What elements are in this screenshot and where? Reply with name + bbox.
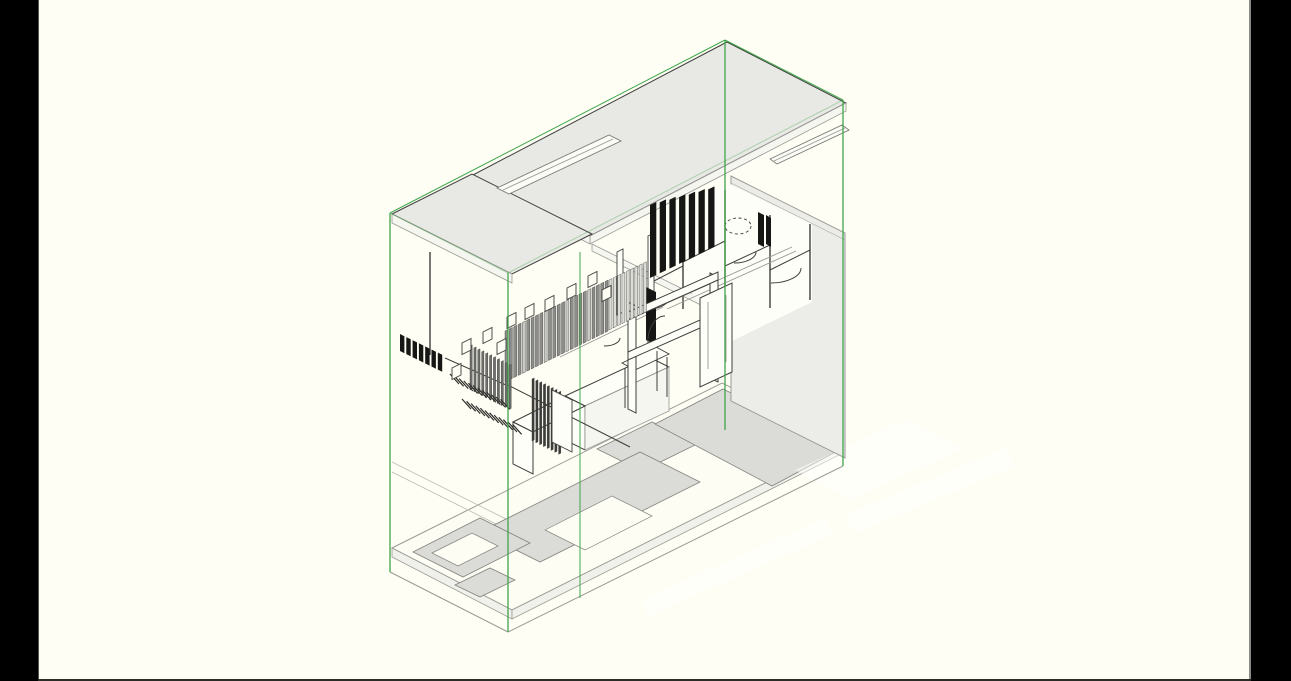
left-wall-dark-louvers — [400, 334, 442, 372]
letterbox-divider-line — [1249, 0, 1251, 681]
dark-door-slot — [646, 287, 656, 345]
application-viewport — [0, 0, 1291, 681]
partition-with-door — [700, 283, 732, 387]
door-arc — [604, 338, 620, 346]
dark-door-slot — [758, 212, 764, 247]
dark-door-slot — [766, 215, 771, 247]
wall-base-line — [392, 462, 512, 522]
screen-panel — [552, 390, 572, 452]
letterbox-right — [1251, 0, 1291, 681]
letterbox-left — [0, 0, 39, 681]
louver-screen-light — [609, 262, 646, 330]
axonometric-3d-view[interactable] — [0, 0, 1291, 681]
louver-screen-main — [505, 280, 608, 382]
